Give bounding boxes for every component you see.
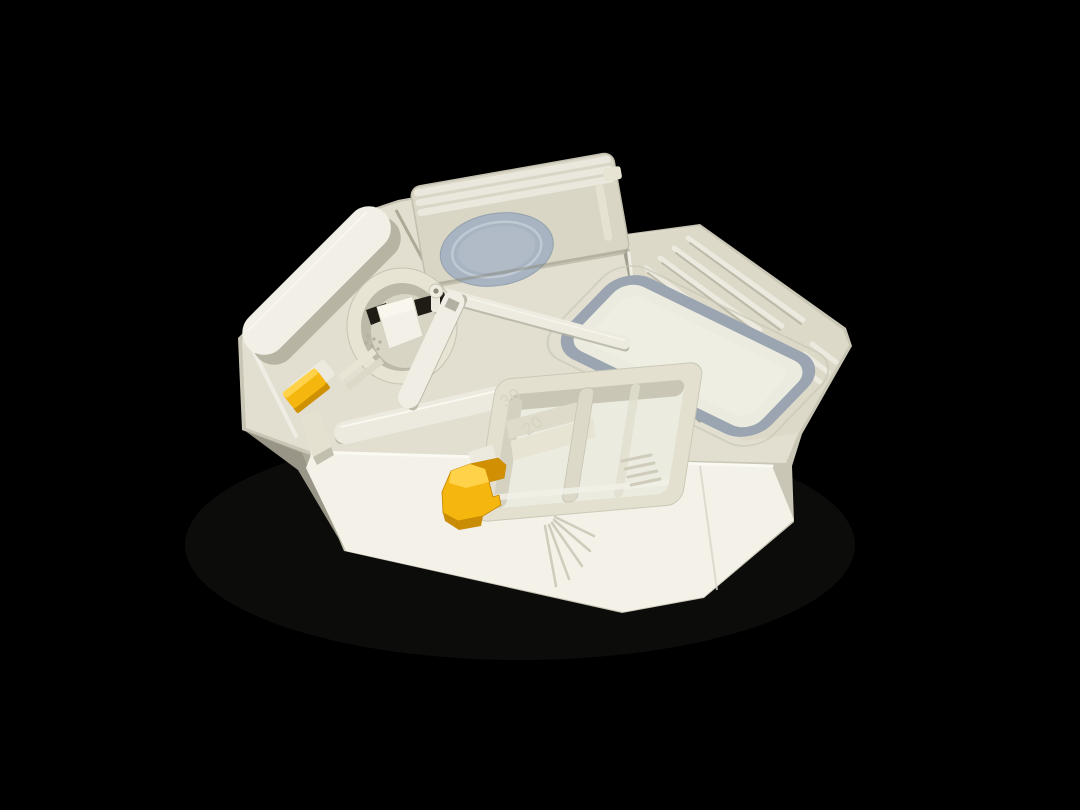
dispenser-scene: 30 20 bbox=[0, 0, 1080, 810]
valve-pin-hole bbox=[433, 288, 438, 293]
detergent-compartment bbox=[474, 362, 704, 523]
product-photo: 30 20 bbox=[0, 0, 1080, 810]
photo-background: 30 20 bbox=[0, 0, 1080, 810]
